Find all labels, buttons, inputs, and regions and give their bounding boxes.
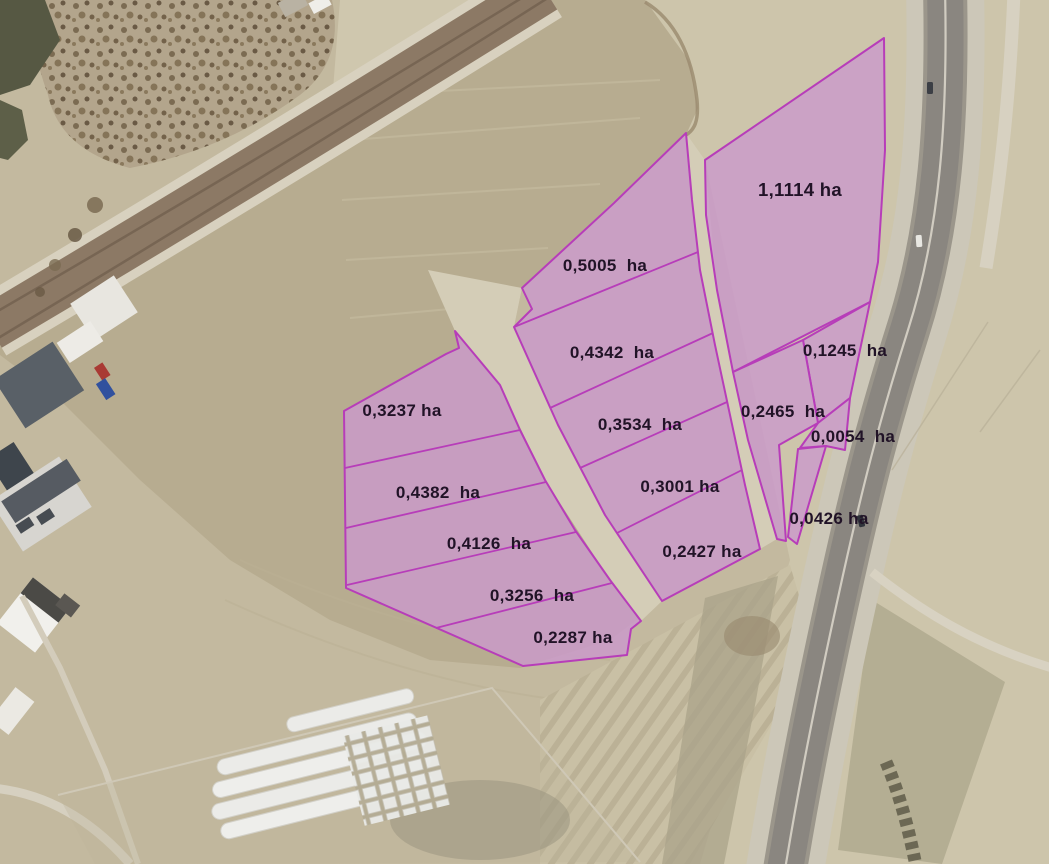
parcel-label: 0,1245 ha [803, 341, 888, 360]
vehicle [927, 82, 933, 94]
parcel-label: 0,5005 ha [563, 256, 648, 275]
parcel-label: 0,4342 ha [570, 343, 655, 362]
parcel-label: 0,0054 ha [811, 427, 896, 446]
parcel-label: 0,2287 ha [533, 628, 613, 647]
parcel-label: 0,4126 ha [447, 534, 532, 553]
parcel-label: 0,2427 ha [662, 542, 742, 561]
parcel-label: 0,4382 ha [396, 483, 481, 502]
parcel-label: 0,3237 ha [362, 401, 442, 420]
parcel-label: 0,3534 ha [598, 415, 683, 434]
parcel-label: 0,2465 ha [741, 402, 826, 421]
parcel-label: 0,0426 ha [789, 509, 869, 528]
parcel-label: 1,1114 ha [758, 179, 842, 200]
parcel-label: 0,3256 ha [490, 586, 575, 605]
aerial-map[interactable]: 0,3237 ha 0,4382 ha 0,4126 ha 0,3256 ha … [0, 0, 1049, 864]
vehicle [916, 235, 923, 247]
dirt-patch [724, 616, 780, 656]
map-viewport[interactable]: 0,3237 ha 0,4382 ha 0,4126 ha 0,3256 ha … [0, 0, 1049, 864]
parcel-label: 0,3001 ha [640, 477, 720, 496]
